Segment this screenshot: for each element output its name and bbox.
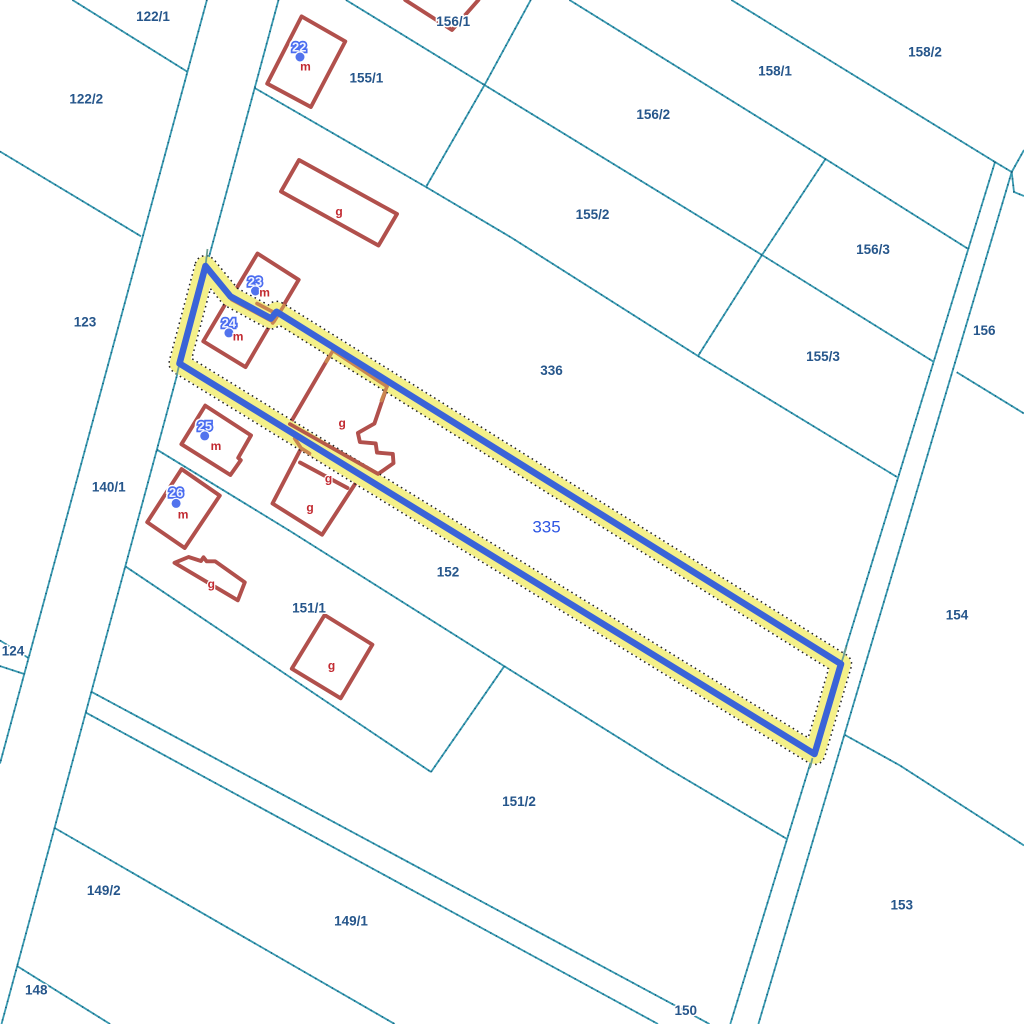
svg-text:156/3: 156/3 — [856, 242, 890, 257]
svg-text:g: g — [328, 659, 335, 673]
svg-text:122/1: 122/1 — [136, 9, 170, 24]
svg-text:149/1: 149/1 — [334, 914, 368, 929]
svg-text:149/2: 149/2 — [87, 883, 121, 898]
svg-text:150: 150 — [675, 1003, 698, 1018]
svg-text:336: 336 — [540, 363, 563, 378]
svg-text:m: m — [178, 507, 189, 521]
svg-text:124: 124 — [2, 644, 25, 659]
svg-text:m: m — [211, 439, 222, 453]
svg-text:156: 156 — [973, 323, 996, 338]
svg-text:335: 335 — [532, 518, 560, 537]
svg-text:g: g — [208, 577, 215, 591]
svg-text:140/1: 140/1 — [92, 480, 126, 495]
svg-text:156/1: 156/1 — [436, 14, 470, 29]
svg-text:153: 153 — [891, 897, 914, 912]
svg-text:155/1: 155/1 — [350, 70, 384, 85]
svg-text:122/2: 122/2 — [69, 91, 103, 106]
svg-text:152: 152 — [437, 565, 460, 580]
svg-text:156/2: 156/2 — [636, 107, 670, 122]
svg-text:158/1: 158/1 — [758, 64, 792, 79]
svg-text:155/3: 155/3 — [806, 349, 840, 364]
svg-text:151/1: 151/1 — [292, 601, 326, 616]
svg-text:g: g — [339, 416, 346, 430]
svg-text:m: m — [233, 330, 244, 344]
svg-text:g: g — [325, 472, 332, 486]
svg-text:155/2: 155/2 — [576, 207, 610, 222]
svg-text:m: m — [259, 286, 270, 300]
svg-text:151/2: 151/2 — [502, 794, 536, 809]
svg-text:158/2: 158/2 — [908, 44, 942, 59]
svg-text:g: g — [306, 501, 313, 515]
svg-text:148: 148 — [25, 982, 48, 997]
svg-text:154: 154 — [946, 608, 969, 623]
svg-text:m: m — [300, 59, 311, 73]
svg-text:123: 123 — [74, 315, 97, 330]
svg-text:g: g — [335, 205, 342, 219]
